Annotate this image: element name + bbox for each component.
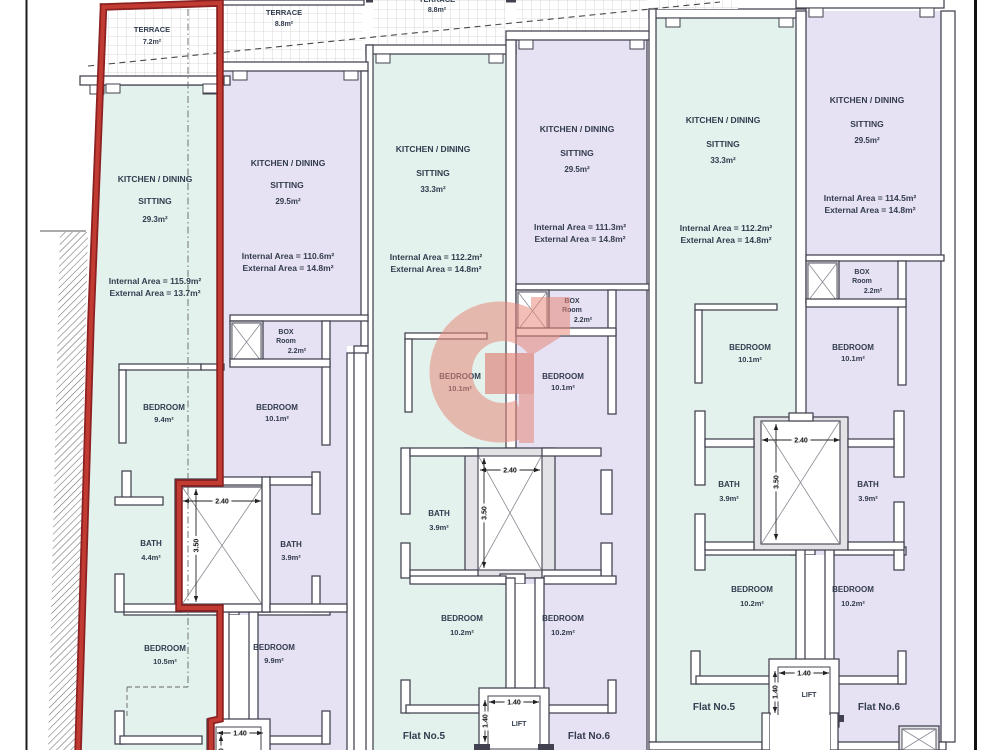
svg-text:3.9m²: 3.9m²: [281, 553, 301, 562]
svg-text:External Area = 14.8m²: External Area = 14.8m²: [390, 264, 481, 274]
svg-text:KITCHEN / DINING: KITCHEN / DINING: [830, 95, 905, 105]
svg-text:3.9m²: 3.9m²: [719, 494, 739, 503]
svg-text:3.9m²: 3.9m²: [429, 523, 449, 532]
svg-text:Flat No.6: Flat No.6: [858, 702, 901, 713]
svg-text:LIFT: LIFT: [512, 721, 527, 728]
svg-text:BEDROOM: BEDROOM: [441, 614, 483, 623]
svg-text:BEDROOM: BEDROOM: [144, 644, 186, 653]
svg-text:SITTING: SITTING: [416, 168, 450, 178]
svg-text:BATH: BATH: [718, 480, 740, 489]
svg-text:10.1m²: 10.1m²: [551, 383, 575, 392]
svg-text:BATH: BATH: [428, 509, 450, 518]
svg-text:Flat No.6: Flat No.6: [568, 731, 611, 742]
svg-text:BOX: BOX: [278, 329, 294, 336]
svg-text:1.40: 1.40: [773, 685, 780, 699]
svg-text:SITTING: SITTING: [560, 148, 594, 158]
svg-text:9.4m²: 9.4m²: [154, 415, 174, 424]
svg-text:SITTING: SITTING: [706, 139, 740, 149]
svg-text:7.2m²: 7.2m²: [143, 39, 162, 46]
svg-text:Internal Area = 112.2m²: Internal Area = 112.2m²: [680, 223, 773, 233]
svg-text:BEDROOM: BEDROOM: [731, 585, 773, 594]
svg-text:Internal Area = 111.3m²: Internal Area = 111.3m²: [534, 222, 626, 232]
svg-text:1.40: 1.40: [797, 671, 811, 678]
svg-text:Room: Room: [852, 278, 872, 285]
svg-text:1.40: 1.40: [507, 700, 521, 707]
svg-text:10.1m²: 10.1m²: [738, 355, 762, 364]
svg-text:SITTING: SITTING: [138, 196, 172, 206]
svg-text:8.8m²: 8.8m²: [428, 7, 447, 14]
svg-text:29.5m²: 29.5m²: [275, 197, 301, 206]
svg-text:Room: Room: [276, 338, 296, 345]
svg-text:10.2m²: 10.2m²: [450, 628, 474, 637]
svg-text:BEDROOM: BEDROOM: [253, 643, 295, 652]
svg-text:2.40: 2.40: [215, 499, 229, 506]
svg-text:Flat No.5: Flat No.5: [403, 731, 446, 742]
svg-text:SITTING: SITTING: [850, 119, 884, 129]
svg-text:2.40: 2.40: [503, 468, 517, 475]
svg-text:3.50: 3.50: [194, 539, 201, 553]
svg-text:2.2m²: 2.2m²: [288, 348, 307, 355]
svg-text:3.50: 3.50: [482, 506, 489, 520]
svg-text:BEDROOM: BEDROOM: [729, 343, 771, 352]
svg-text:Internal Area = 114.5m²: Internal Area = 114.5m²: [824, 193, 917, 203]
svg-text:TERRACE: TERRACE: [419, 0, 455, 4]
svg-text:9.9m²: 9.9m²: [264, 656, 284, 665]
svg-text:Internal Area = 112.2m²: Internal Area = 112.2m²: [390, 252, 483, 262]
svg-text:BEDROOM: BEDROOM: [542, 372, 584, 381]
svg-text:BEDROOM: BEDROOM: [143, 403, 185, 412]
svg-text:TERRACE: TERRACE: [266, 8, 302, 17]
svg-text:4.4m²: 4.4m²: [141, 553, 161, 562]
svg-text:BEDROOM: BEDROOM: [832, 343, 874, 352]
svg-text:1.40: 1.40: [483, 714, 490, 728]
svg-text:3.50: 3.50: [774, 475, 781, 489]
svg-text:External Area = 14.8m²: External Area = 14.8m²: [824, 205, 915, 215]
svg-text:10.2m²: 10.2m²: [740, 599, 764, 608]
svg-text:KITCHEN / DINING: KITCHEN / DINING: [540, 124, 615, 134]
svg-text:33.3m²: 33.3m²: [710, 156, 736, 165]
svg-text:3.9m²: 3.9m²: [858, 494, 878, 503]
svg-text:2.2m²: 2.2m²: [864, 288, 883, 295]
svg-text:2.2m²: 2.2m²: [574, 317, 593, 324]
svg-text:KITCHEN / DINING: KITCHEN / DINING: [118, 174, 193, 184]
svg-text:Internal Area = 110.6m²: Internal Area = 110.6m²: [242, 251, 335, 261]
svg-text:BEDROOM: BEDROOM: [256, 403, 298, 412]
svg-text:KITCHEN / DINING: KITCHEN / DINING: [686, 115, 761, 125]
svg-text:29.5m²: 29.5m²: [854, 136, 880, 145]
svg-text:External Area = 14.8m²: External Area = 14.8m²: [242, 263, 333, 273]
svg-text:Flat No.5: Flat No.5: [693, 702, 736, 713]
svg-text:External Area = 14.8m²: External Area = 14.8m²: [534, 234, 625, 244]
svg-text:BATH: BATH: [857, 480, 879, 489]
svg-text:10.5m²: 10.5m²: [153, 657, 177, 666]
svg-text:LIFT: LIFT: [802, 692, 817, 699]
svg-text:SITTING: SITTING: [270, 180, 304, 190]
svg-text:10.2m²: 10.2m²: [551, 628, 575, 637]
svg-text:10.1m²: 10.1m²: [841, 354, 865, 363]
svg-text:External Area = 13.7m²: External Area = 13.7m²: [109, 288, 200, 298]
svg-text:1.40: 1.40: [233, 731, 247, 738]
svg-text:Internal Area = 115.9m²: Internal Area = 115.9m²: [109, 276, 202, 286]
svg-text:BOX: BOX: [854, 269, 870, 276]
svg-text:KITCHEN / DINING: KITCHEN / DINING: [251, 158, 326, 168]
svg-text:TERRACE: TERRACE: [134, 25, 170, 34]
svg-text:BEDROOM: BEDROOM: [542, 614, 584, 623]
svg-text:29.3m²: 29.3m²: [142, 215, 168, 224]
svg-text:29.5m²: 29.5m²: [564, 165, 590, 174]
svg-text:33.3m²: 33.3m²: [420, 185, 446, 194]
svg-text:BATH: BATH: [280, 540, 302, 549]
svg-text:BEDROOM: BEDROOM: [832, 585, 874, 594]
svg-text:2.40: 2.40: [794, 438, 808, 445]
svg-text:10.2m²: 10.2m²: [841, 599, 865, 608]
svg-text:BATH: BATH: [140, 539, 162, 548]
svg-text:8.8m²: 8.8m²: [275, 21, 294, 28]
svg-text:External Area = 14.8m²: External Area = 14.8m²: [680, 235, 771, 245]
svg-text:10.1m²: 10.1m²: [265, 414, 289, 423]
svg-text:KITCHEN / DINING: KITCHEN / DINING: [396, 144, 471, 154]
